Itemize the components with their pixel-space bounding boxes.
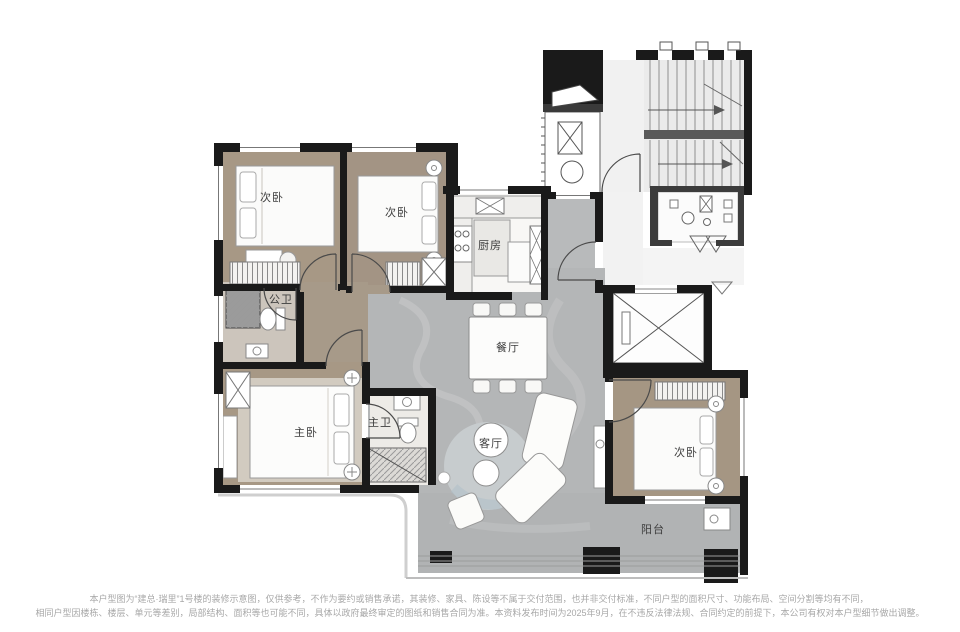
bed-icon [634,396,724,494]
floorplan-page: 次卧 次卧 公卫 主卧 主卫 厨房 餐厅 客厅 次卧 阳台 本户型图为“建总·瑞… [0,0,960,632]
room-label-balcony: 阳台 [641,522,665,536]
wardrobe-icon [386,258,446,286]
disclaimer-line-1: 本户型图为“建总·瑞里”1号楼的装修示意图，仅供参考，不作为要约或销售承诺，其装… [89,593,868,604]
room-label-master-bedroom: 主卧 [294,426,318,439]
room-label-dining: 餐厅 [496,340,520,354]
room-label-living: 客厅 [479,436,503,450]
room-label-kitchen: 厨房 [478,239,502,252]
sink-icon [246,344,268,358]
room-label-bedroom-top-left: 次卧 [260,190,284,204]
utility-shaft-icon [541,112,600,195]
disclaimer-line-2: 相同户型因楼栋、楼层、单元等差别，局部结构、面积等也可能不同，具体以政府最终审定… [35,607,924,618]
floor-plan-svg: 次卧 次卧 公卫 主卧 主卫 厨房 餐厅 客厅 次卧 阳台 本户型图为“建总·瑞… [0,0,960,632]
sink-icon [394,394,420,410]
console-table-icon [594,426,606,488]
washer-icon [226,286,260,328]
toilet-icon [260,308,285,330]
room-label-bedroom-right: 次卧 [674,445,698,459]
shower-icon [368,448,426,482]
elevator-icon [613,293,704,363]
room-label-master-bath: 主卫 [368,416,392,429]
room-label-bedroom-top-mid: 次卧 [385,205,409,219]
room-label-public-bath: 公卫 [269,294,293,306]
wardrobe-icon [230,262,300,284]
balcony-sink-icon [704,508,730,530]
disclaimer: 本户型图为“建总·瑞里”1号楼的装修示意图，仅供参考，不作为要约或销售承诺，其装… [35,593,924,618]
bed-icon [236,166,334,246]
bed-icon [250,370,360,480]
